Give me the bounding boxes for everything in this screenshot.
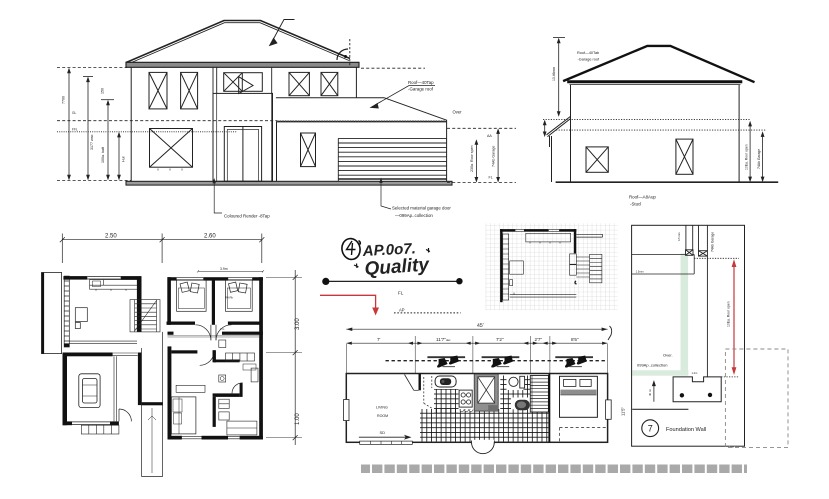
svg-text:2'7": 2'7": [535, 337, 543, 342]
svg-text:2.50: 2.50: [105, 234, 117, 240]
svg-text:100a. batt: 100a. batt: [101, 147, 105, 163]
svg-text:Over: Over: [453, 110, 463, 115]
svg-text:FFL: FFL: [72, 128, 78, 132]
svg-text:AA: AA: [487, 134, 492, 138]
svg-text:150: 150: [101, 88, 105, 94]
svg-text:1.4m: 1.4m: [692, 371, 698, 375]
svg-text:74Ab Garage: 74Ab Garage: [492, 146, 496, 167]
svg-text:099Ap..collection: 099Ap..collection: [637, 363, 667, 368]
svg-text:-Garage roof: -Garage roof: [408, 87, 434, 92]
svg-text:13.46mm: 13.46mm: [552, 67, 556, 81]
svg-text:74Ab Garage: 74Ab Garage: [711, 232, 715, 252]
svg-text:230a. Roor spen: 230a. Roor spen: [470, 145, 474, 172]
svg-text:7: 7: [648, 424, 653, 434]
svg-text:7700: 7700: [62, 96, 66, 104]
svg-text:3.00: 3.00: [295, 318, 301, 330]
svg-text:3177 wac: 3177 wac: [90, 134, 94, 150]
svg-text:Hul: Hul: [122, 156, 126, 162]
svg-text:LIVING: LIVING: [376, 406, 388, 410]
svg-text:Coloured Render -8Tap: Coloured Render -8Tap: [224, 214, 270, 219]
svg-text:11'5": 11'5": [621, 407, 626, 416]
svg-text:Selected material garage door: Selected material garage door: [392, 206, 451, 211]
svg-text:74Ab Garage: 74Ab Garage: [757, 149, 761, 169]
svg-text:GL: GL: [72, 111, 76, 115]
svg-text:-Garage roof: -Garage roof: [578, 58, 600, 62]
svg-text:Roof—40Tab: Roof—40Tab: [577, 51, 599, 55]
svg-text:ROOM: ROOM: [377, 414, 388, 418]
svg-text:1.5mm: 1.5mm: [636, 270, 644, 274]
svg-text:1.00: 1.00: [295, 413, 301, 425]
svg-text:2.60: 2.60: [204, 234, 216, 240]
svg-text:4.5 mm: 4.5 mm: [677, 232, 681, 241]
svg-text:RA Rk: RA Rk: [225, 296, 234, 300]
svg-text:45': 45': [477, 323, 484, 329]
svg-text:FL: FL: [398, 291, 404, 296]
svg-text:AP: AP: [399, 308, 405, 313]
svg-text:Foundation Wall: Foundation Wall: [666, 427, 706, 433]
svg-text:Roof—40Tap: Roof—40Tap: [408, 80, 434, 85]
svg-text:FL: FL: [489, 176, 493, 180]
svg-text:40 mi: 40 mi: [648, 389, 652, 396]
svg-text:10Ea. Roor open: 10Ea. Roor open: [745, 144, 749, 170]
svg-text:7'2": 7'2": [496, 337, 504, 342]
svg-text:7': 7': [377, 337, 381, 342]
svg-text:Roof—A8Aup: Roof—A8Aup: [629, 195, 656, 200]
svg-text:3.9m: 3.9m: [220, 267, 228, 271]
svg-text:8'5": 8'5": [571, 337, 579, 342]
svg-text:11'7"dac: 11'7"dac: [436, 337, 451, 342]
svg-text:SD: SD: [380, 430, 386, 435]
svg-text:-Stucl: -Stucl: [630, 202, 641, 207]
svg-text:10Ea. Roor open: 10Ea. Roor open: [727, 301, 731, 327]
svg-text:—099Ap..collection: —099Ap..collection: [395, 213, 433, 218]
svg-text:Over.: Over.: [663, 353, 673, 358]
